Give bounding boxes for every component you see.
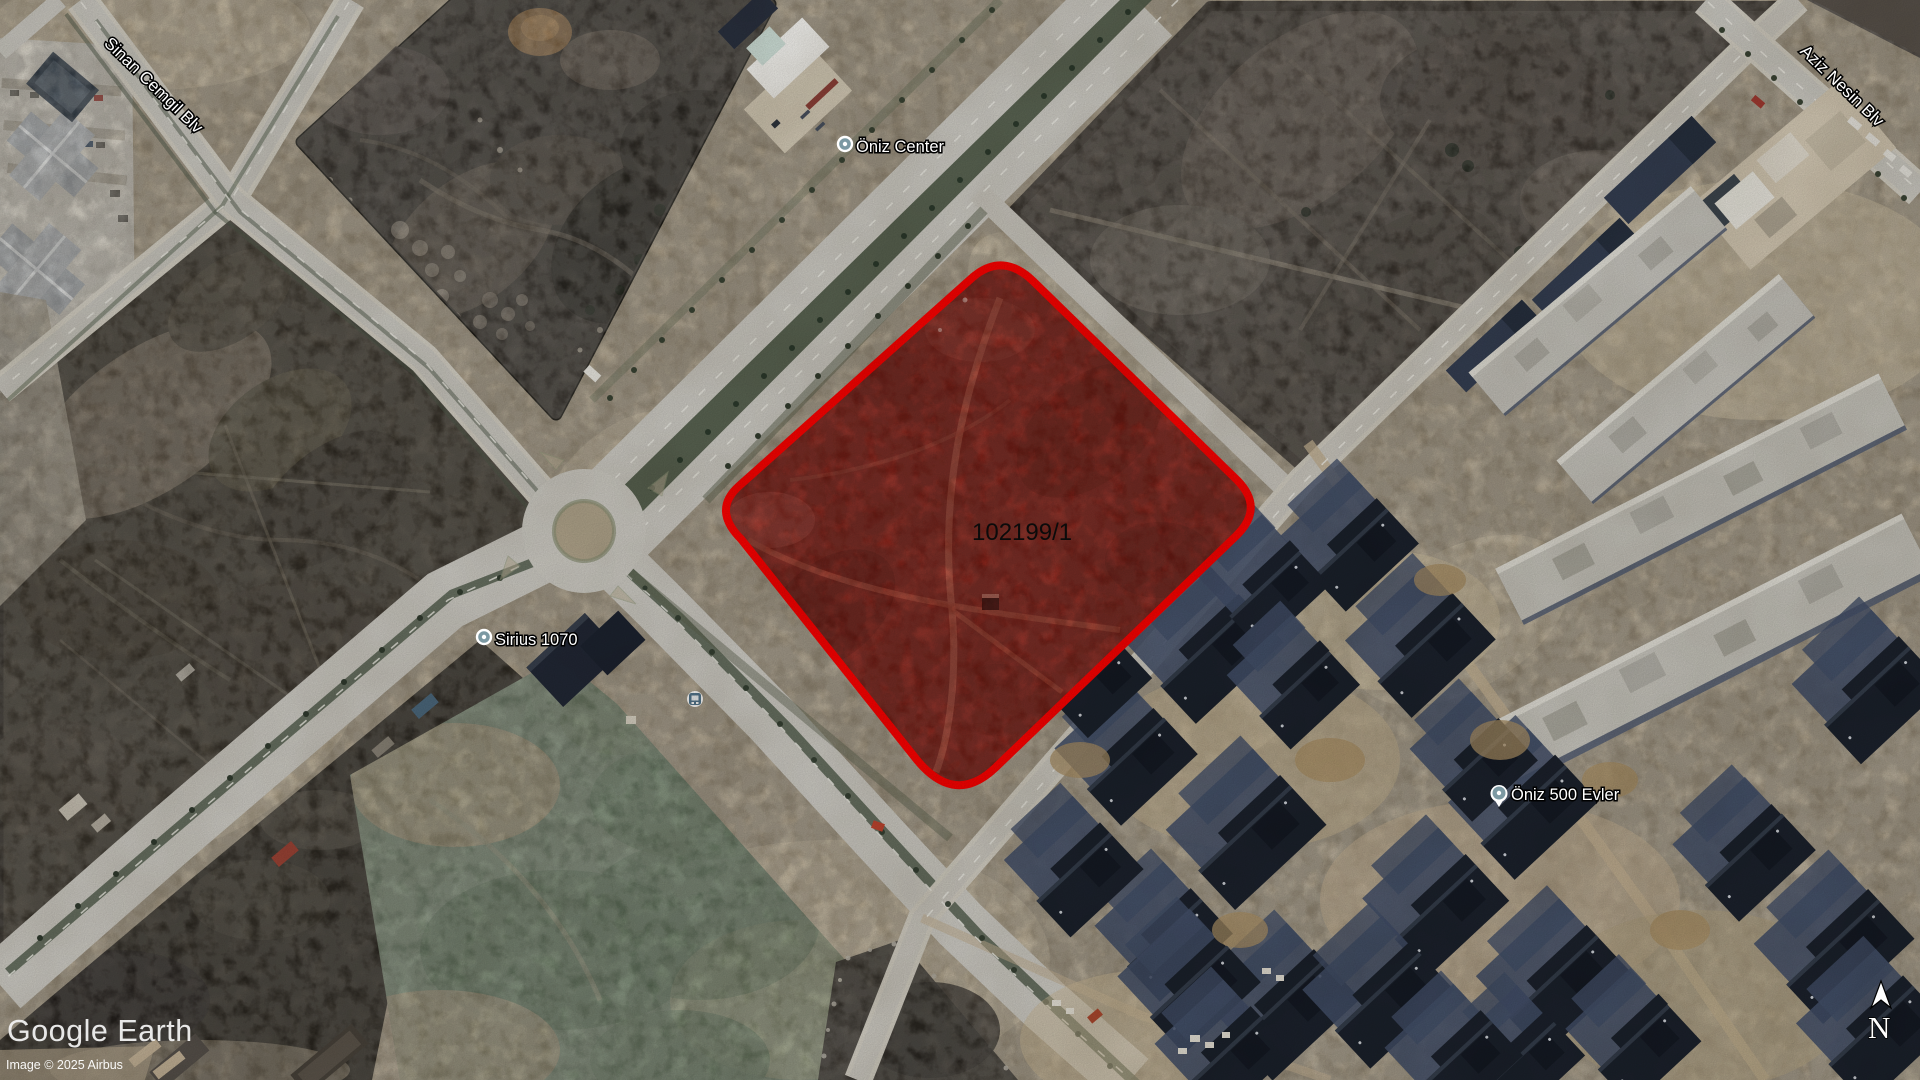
svg-text:N: N [1868, 1010, 1890, 1045]
svg-text:Öniz Center: Öniz Center [856, 138, 945, 156]
svg-text:Google Earth: Google Earth [7, 1014, 193, 1048]
svg-text:Öniz 500 Evler: Öniz 500 Evler [1511, 786, 1620, 804]
svg-text:Sirius 1070: Sirius 1070 [495, 631, 578, 649]
svg-text:102199/1: 102199/1 [972, 519, 1072, 546]
svg-text:Image © 2025 Airbus: Image © 2025 Airbus [6, 1058, 123, 1072]
